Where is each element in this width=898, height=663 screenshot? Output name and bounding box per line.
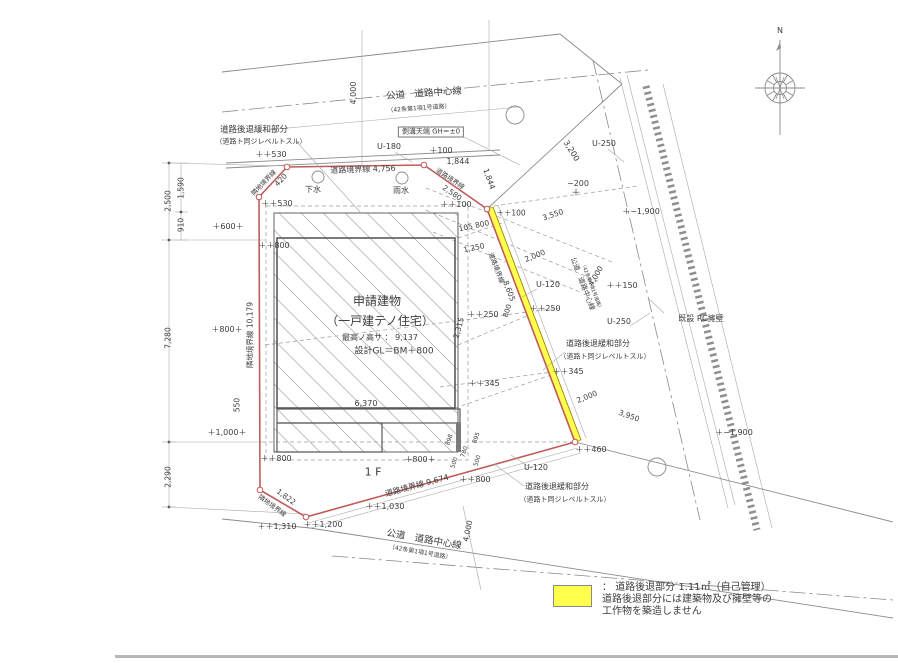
plan-label: （道路ト同ジレベルトスル） [520,497,611,504]
plan-label: ＋＋800 [459,476,490,484]
plan-label: 道路境界線 [487,252,505,285]
plan-label: ＋＋345 [468,380,499,388]
legend: ： 道路後退部分 1.11㎡（自己管理） 道路後退部分には建築物及び擁壁等の 工… [553,582,772,618]
plan-label: 105 800 [458,219,490,233]
plan-label: U-250 [607,318,631,326]
plan-label: 2,315 [452,317,465,340]
plan-label: ＋1,000＋ [208,429,247,437]
plan-label: （道路ト同ジレベルトスル） [216,139,307,146]
plan-label: ＋＋250 [467,311,498,319]
plan-label: 4,000 [462,520,474,543]
plan-label: 1,590 [177,177,185,198]
plan-label: ＋−1,900 [622,208,660,216]
plan-label: ＋＋1,030 [366,503,405,511]
plan-label: U-120 [524,464,548,472]
plan-label: 3,550 [542,208,565,222]
plan-label: 2,000 [524,248,547,263]
plan-label: ＋＋800 [260,455,291,463]
plan-label: 道路後退緩和部分 [525,483,589,491]
plan-label: ＋＋345 [552,368,583,376]
plan-label: ＋＋460 [575,446,606,454]
plan-label: ＋＋530 [261,200,292,208]
plan-label: 500 [450,457,459,470]
plan-label: 898 [445,434,454,447]
plan-label: 500 [473,455,482,468]
plan-label: 800 [503,304,514,319]
setback-color-swatch [553,585,592,607]
plan-label: 6,370 [355,400,378,408]
annotation-layer: 公道 道路中心線（42条第1項1号道路）側溝天端 GH＝±04,000道路後退緩… [0,0,898,663]
plan-label: 1 F [365,467,382,478]
plan-label: 隣地境界線 10,179 [246,302,254,368]
plan-label: ＋＋800 [258,242,289,250]
plan-label: 道路境界線 9,674 [384,474,449,499]
plan-label: ＋＋1,310 [258,523,297,531]
legend-line-1: ： 道路後退部分 1.11㎡（自己管理） [602,582,772,594]
plan-label: 申請建物 [353,295,401,307]
plan-label: U-250 [592,140,616,148]
plan-label: 550 [233,398,241,412]
plan-label: ＋−1,900 [715,429,753,437]
legend-line-3: 工作物を築造しません [602,606,772,618]
plan-label: 1,844 [447,158,470,166]
plan-label: ＋＋100 [440,201,471,209]
plan-label: （道路ト同ジレベルトスル） [560,354,651,361]
plan-label: 既設 RC擁壁 [678,315,723,323]
plan-label: ＋600＋ [212,223,243,231]
site-plan-page: 公道 道路中心線（42条第1項1号道路）側溝天端 GH＝±04,000道路後退緩… [0,0,898,663]
plan-label: 1,844 [482,168,496,191]
plan-label: ＋＋150 [606,282,637,290]
scan-edge-artifact [115,655,898,658]
plan-label: 895 [472,432,481,445]
plan-label: 下水 [305,186,321,194]
plan-label: 道路後退緩和部分 [220,126,288,135]
plan-label: ＋＋1,200 [304,521,343,529]
plan-label: 780 [460,446,469,459]
plan-label: 設計GL＝BM＋800 [354,348,433,357]
plan-label: 2,500 [164,190,172,211]
plan-label: 3,200 [562,139,581,163]
plan-label: ＋＋530 [255,151,286,159]
plan-label: ＋800＋ [404,456,435,464]
plan-label: 910 [177,218,185,232]
plan-label: 最高ノ高サ ： 9,137 [342,334,418,342]
plan-label: （一戸建テノ住宅） [326,315,434,327]
plan-label: ＋＋250 [529,305,560,313]
plan-label: 側溝天端 GH＝±0 [398,127,464,138]
plan-label: 3,950 [618,409,641,423]
plan-label: 1,250 [463,242,486,254]
plan-label: ＋＋100 [496,209,525,217]
plan-label: 公道 道路中心線 [386,87,462,102]
plan-label: 4,000 [587,265,604,287]
plan-label: 1,822 [275,488,297,507]
plan-label: 7,280 [164,327,172,348]
plan-label: N [777,27,783,35]
plan-label: 8,605 [502,280,517,303]
plan-label: （42条第1項1号道路） [387,104,451,114]
plan-label: 道路境界線 4,756 [330,165,396,175]
plan-label: ＋800＋ [211,326,242,334]
plan-label: 4,000 [350,82,358,105]
plan-label: U-180 [377,143,401,151]
plan-label: ＋ [571,190,580,199]
plan-label: 道路後退緩和部分 [566,340,630,348]
legend-line-2: 道路後退部分には建築物及び擁壁等の [602,594,772,606]
plan-label: 雨水 [393,187,409,195]
plan-label: 2,000 [576,389,599,404]
plan-label: −200 [567,180,589,188]
plan-label: U-120 [536,281,560,289]
plan-label: 2,290 [164,466,172,487]
plan-label: ＋100 [429,147,452,155]
